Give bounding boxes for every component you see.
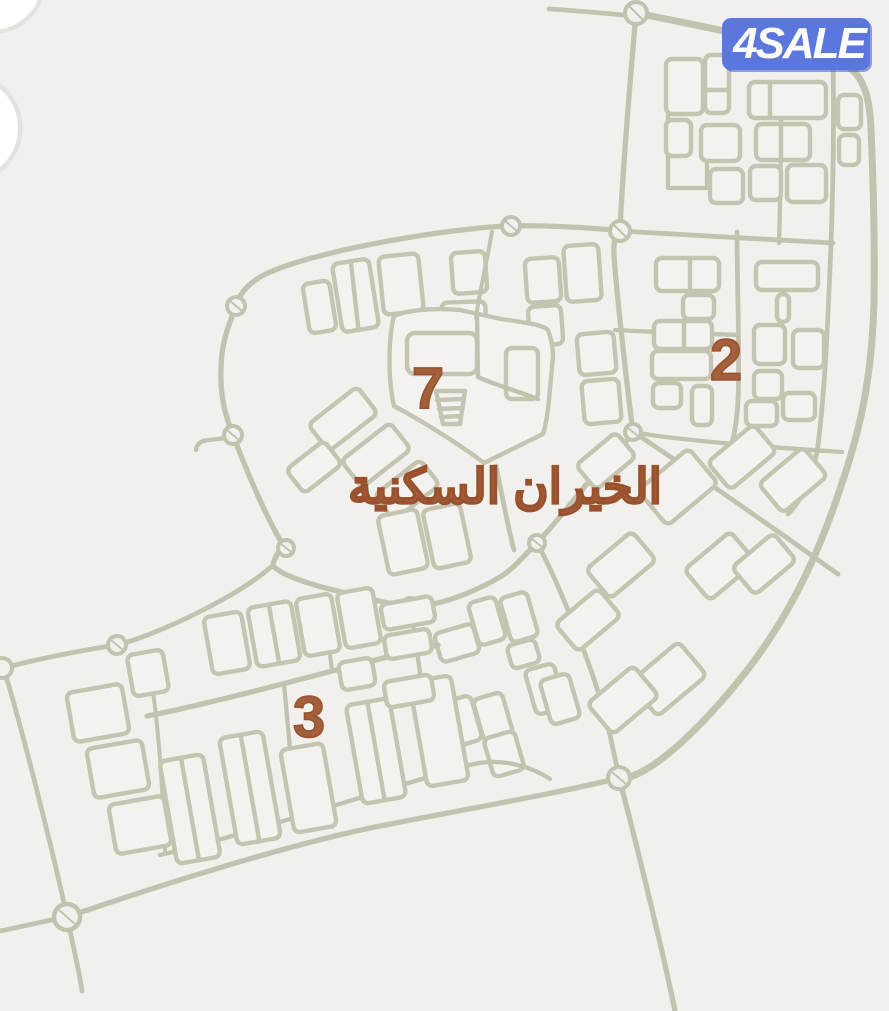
- svg-text:الخيران السكنية: الخيران السكنية: [348, 461, 662, 516]
- svg-text:2: 2: [710, 328, 742, 393]
- svg-text:4SALE: 4SALE: [732, 19, 868, 68]
- svg-text:7: 7: [412, 356, 444, 421]
- svg-text:3: 3: [293, 685, 325, 750]
